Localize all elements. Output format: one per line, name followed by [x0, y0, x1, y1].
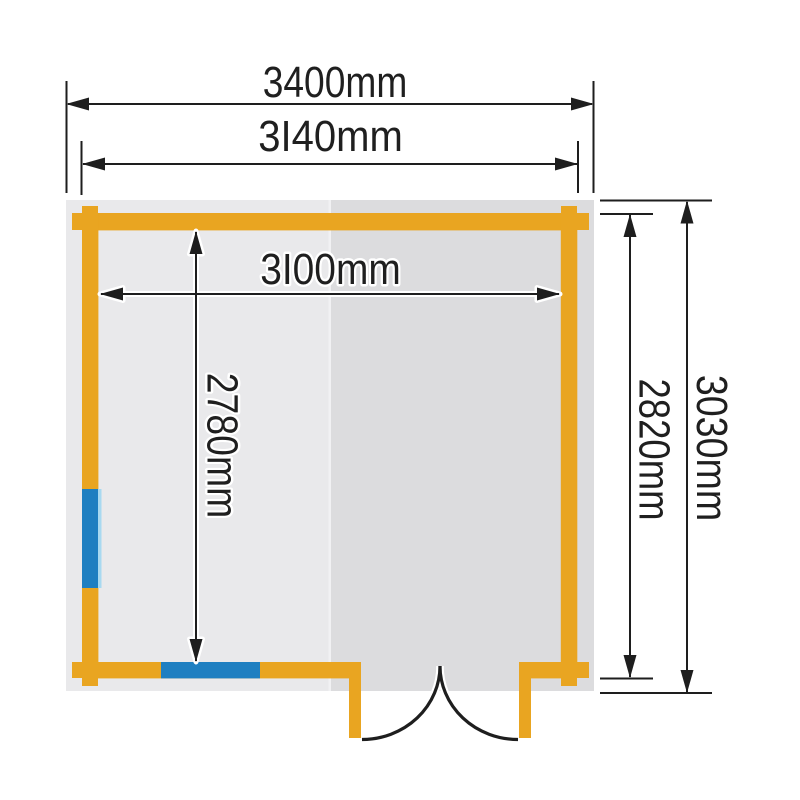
svg-text:2820mm: 2820mm: [630, 378, 680, 520]
svg-text:3400mm: 3400mm: [263, 57, 408, 107]
svg-text:3I00mm: 3I00mm: [260, 244, 401, 294]
svg-text:3I40mm: 3I40mm: [258, 111, 403, 160]
svg-text:3030mm: 3030mm: [687, 375, 736, 521]
svg-text:2780mm: 2780mm: [198, 373, 248, 519]
